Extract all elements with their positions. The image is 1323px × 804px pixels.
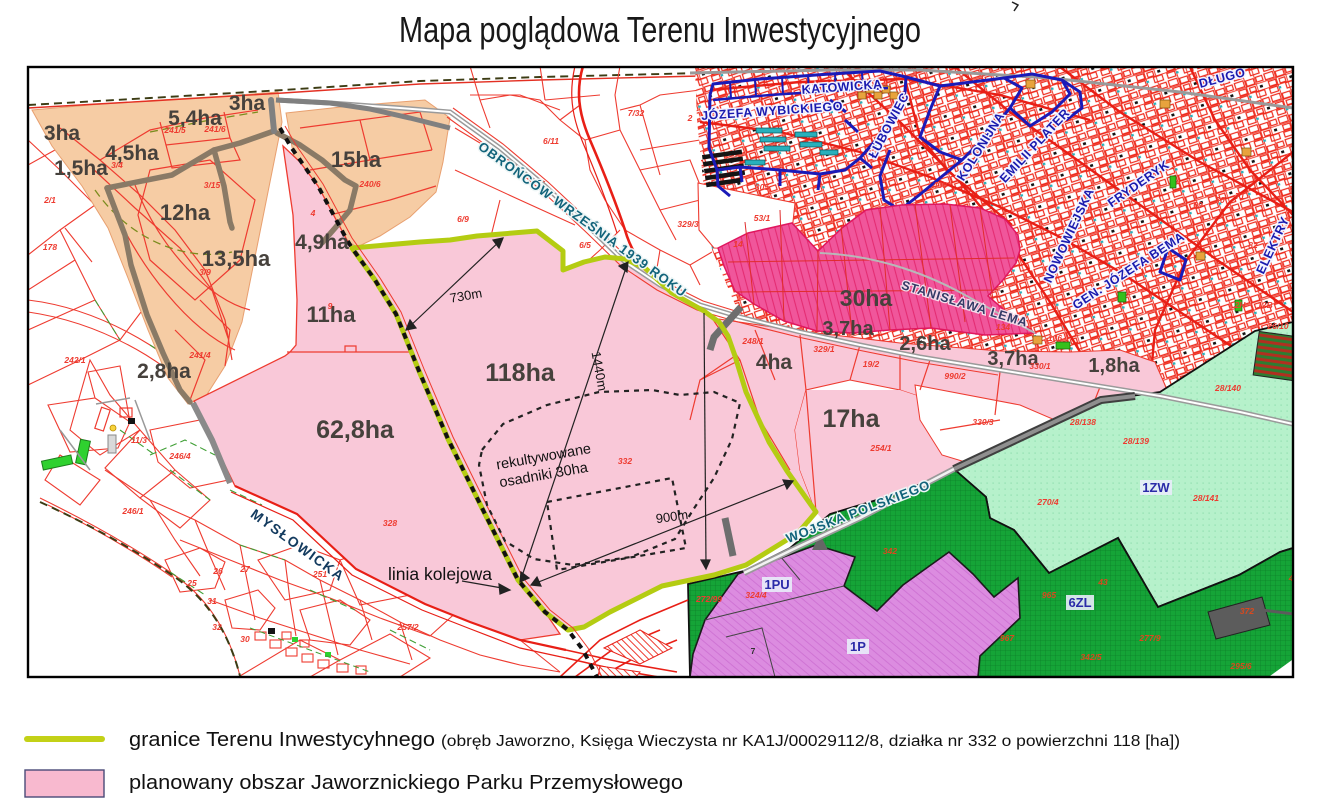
svg-text:28/140: 28/140 bbox=[1214, 383, 1241, 393]
svg-text:granice Terenu Inwestycyhnego: granice Terenu Inwestycyhnego bbox=[129, 729, 435, 751]
svg-text:1,5ha: 1,5ha bbox=[54, 157, 108, 180]
svg-text:25: 25 bbox=[186, 578, 197, 588]
svg-text:28/141: 28/141 bbox=[1192, 493, 1219, 503]
svg-text:241/5: 241/5 bbox=[163, 125, 186, 135]
svg-text:1ZW: 1ZW bbox=[1142, 480, 1170, 495]
svg-text:342/5: 342/5 bbox=[1080, 652, 1102, 662]
svg-text:3ha: 3ha bbox=[44, 122, 81, 145]
svg-text:42/1: 42/1 bbox=[1288, 573, 1306, 583]
svg-text:241/6: 241/6 bbox=[203, 124, 226, 134]
svg-text:2: 2 bbox=[687, 113, 693, 123]
svg-text:967: 967 bbox=[1000, 633, 1015, 643]
svg-text:7/32: 7/32 bbox=[628, 108, 645, 118]
svg-text:6/5: 6/5 bbox=[579, 240, 591, 250]
svg-text:28/138: 28/138 bbox=[1069, 417, 1096, 427]
svg-text:28/139: 28/139 bbox=[1122, 436, 1149, 446]
svg-text:7: 7 bbox=[751, 646, 756, 656]
svg-text:246/1: 246/1 bbox=[121, 506, 144, 516]
svg-text:30ha: 30ha bbox=[840, 285, 893, 311]
svg-text:342: 342 bbox=[883, 546, 897, 556]
svg-text:329/1: 329/1 bbox=[813, 344, 835, 354]
svg-text:328: 328 bbox=[383, 518, 397, 528]
svg-text:planowany obszar Jaworznickieg: planowany obszar Jaworznickiego Parku Pr… bbox=[129, 772, 683, 794]
svg-text:4: 4 bbox=[310, 208, 316, 218]
svg-text:3,7ha: 3,7ha bbox=[822, 318, 874, 340]
svg-text:6/9: 6/9 bbox=[457, 214, 469, 224]
svg-text:240/6: 240/6 bbox=[358, 179, 381, 189]
svg-text:330/1: 330/1 bbox=[1029, 361, 1051, 371]
svg-text:118ha: 118ha bbox=[485, 359, 556, 387]
svg-text:70: 70 bbox=[1215, 195, 1225, 205]
svg-text:3/9: 3/9 bbox=[199, 267, 211, 277]
svg-text:1P: 1P bbox=[850, 639, 866, 654]
svg-text:71: 71 bbox=[1235, 191, 1245, 201]
svg-text:19/2: 19/2 bbox=[863, 359, 880, 369]
svg-text:62,8ha: 62,8ha bbox=[316, 416, 395, 444]
svg-text:12B: 12B bbox=[1257, 300, 1273, 310]
svg-text:Mapa poglądowa Terenu Inwestyc: Mapa poglądowa Terenu Inwestycyjnego bbox=[399, 9, 921, 50]
svg-text:3/4: 3/4 bbox=[111, 160, 123, 170]
svg-text:15ha: 15ha bbox=[331, 147, 382, 172]
svg-text:136: 136 bbox=[1048, 333, 1062, 343]
svg-text:27: 27 bbox=[239, 564, 251, 574]
svg-text:254/1: 254/1 bbox=[869, 443, 892, 453]
svg-text:69: 69 bbox=[1193, 200, 1203, 210]
svg-text:305: 305 bbox=[755, 182, 769, 192]
svg-text:277/9: 277/9 bbox=[1138, 633, 1161, 643]
svg-text:43: 43 bbox=[1097, 577, 1108, 587]
svg-text:2/1: 2/1 bbox=[43, 195, 56, 205]
svg-text:330/3: 330/3 bbox=[972, 417, 994, 427]
svg-text:4,9ha: 4,9ha bbox=[295, 231, 349, 254]
svg-text:11/3: 11/3 bbox=[131, 435, 147, 445]
svg-text:295/6: 295/6 bbox=[1229, 661, 1252, 671]
svg-text:2,8ha: 2,8ha bbox=[137, 360, 191, 383]
svg-text:2H: 2H bbox=[1234, 300, 1247, 310]
svg-text:965: 965 bbox=[1042, 590, 1056, 600]
svg-text:3/15: 3/15 bbox=[204, 180, 221, 190]
svg-text:31: 31 bbox=[207, 596, 217, 606]
svg-text:329/3: 329/3 bbox=[677, 219, 699, 229]
svg-text:17ha: 17ha bbox=[823, 405, 881, 433]
svg-text:linia kolejowa: linia kolejowa bbox=[388, 564, 492, 584]
svg-text:242/1: 242/1 bbox=[63, 355, 86, 365]
svg-text:257/2: 257/2 bbox=[396, 622, 419, 632]
svg-text:3ha: 3ha bbox=[229, 92, 266, 115]
svg-text:82: 82 bbox=[1248, 240, 1258, 250]
svg-text:6ZL: 6ZL bbox=[1068, 595, 1091, 610]
svg-text:4ha: 4ha bbox=[756, 351, 793, 374]
svg-text:372: 372 bbox=[1240, 606, 1254, 616]
svg-text:1,8ha: 1,8ha bbox=[1088, 355, 1140, 377]
svg-text:6/11: 6/11 bbox=[543, 136, 559, 146]
svg-text:26/10: 26/10 bbox=[1266, 321, 1289, 331]
svg-text:(obręb Jaworzno, Księga Wieczy: (obręb Jaworzno, Księga Wieczysta nr KA1… bbox=[441, 733, 1180, 750]
svg-text:32: 32 bbox=[212, 622, 222, 632]
svg-text:248/1: 248/1 bbox=[741, 336, 764, 346]
svg-text:178: 178 bbox=[43, 242, 57, 252]
svg-text:13,5ha: 13,5ha bbox=[202, 246, 271, 271]
svg-text:990/2: 990/2 bbox=[944, 371, 966, 381]
svg-text:30: 30 bbox=[240, 634, 250, 644]
svg-text:12ha: 12ha bbox=[160, 200, 211, 225]
svg-text:9: 9 bbox=[328, 301, 333, 311]
svg-text:246/4: 246/4 bbox=[168, 451, 191, 461]
svg-text:26: 26 bbox=[212, 566, 223, 576]
svg-text:1PU: 1PU bbox=[764, 577, 789, 592]
svg-text:2,6ha: 2,6ha bbox=[899, 333, 951, 355]
svg-text:332: 332 bbox=[618, 456, 632, 466]
svg-text:14: 14 bbox=[733, 239, 743, 249]
svg-text:272/99: 272/99 bbox=[695, 594, 722, 604]
svg-text:241/4: 241/4 bbox=[188, 350, 211, 360]
svg-text:53/1: 53/1 bbox=[754, 213, 771, 223]
svg-text:270/4: 270/4 bbox=[1036, 497, 1059, 507]
svg-text:438: 438 bbox=[932, 180, 947, 190]
